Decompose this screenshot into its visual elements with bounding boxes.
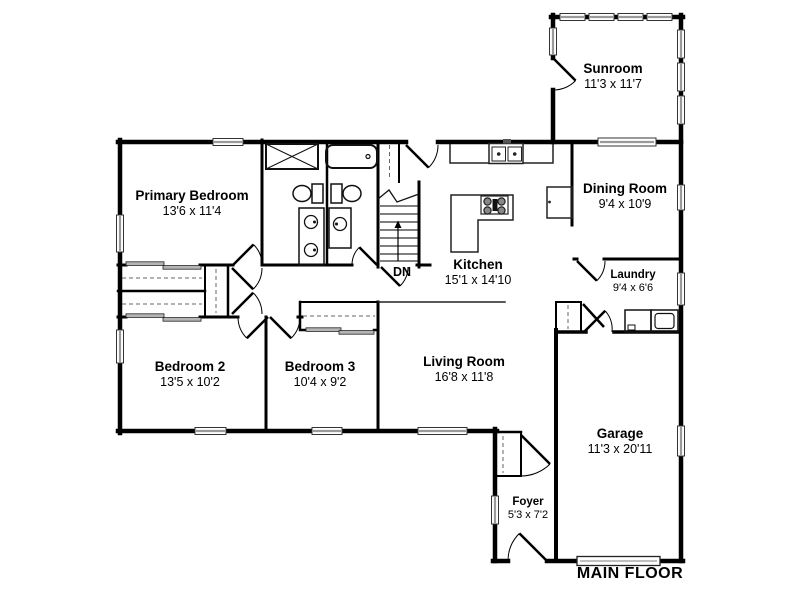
- window-sunroom-top-2: [589, 14, 614, 21]
- bathroom-door: [352, 247, 377, 265]
- room-name: Kitchen: [445, 257, 512, 273]
- room-name: Primary Bedroom: [135, 188, 248, 204]
- refrigerator: [547, 187, 572, 218]
- room-label-kitchen: Kitchen 15'1 x 14'10: [445, 257, 512, 287]
- window-sunroom-left: [550, 28, 557, 55]
- room-label-primary-bedroom: Primary Bedroom 13'6 x 11'4: [135, 188, 248, 218]
- window-sunroom-right-1: [678, 30, 685, 58]
- window-laundry-right: [678, 273, 685, 305]
- vanity-primary: [299, 208, 324, 265]
- exterior-walls: [118, 15, 683, 561]
- primary-closet-sliders: [126, 262, 201, 269]
- windows: [117, 14, 685, 566]
- room-name: Garage: [588, 426, 653, 442]
- room-name: Living Room: [423, 354, 505, 370]
- stairs-down-label: DN: [393, 265, 411, 279]
- room-dims: 13'5 x 10'2: [155, 375, 226, 389]
- vanity-hall-bath: [329, 208, 351, 248]
- stairs: [378, 190, 419, 261]
- bathtub-fixture: [326, 145, 377, 168]
- room-name: Laundry: [610, 269, 655, 282]
- laundry-fixtures: [625, 310, 678, 332]
- room-name: Bedroom 3: [285, 359, 356, 375]
- sliding-closet-doors: [126, 262, 374, 334]
- room-label-living-room: Living Room 16'8 x 11'8: [423, 354, 505, 384]
- wall-foyer-closet-side: [495, 432, 521, 476]
- window-garage-right: [678, 426, 685, 456]
- bedroom2-closet-sliders: [126, 314, 201, 321]
- window-primary-left: [117, 215, 124, 252]
- laundry-door: [577, 261, 605, 281]
- room-label-bedroom-2: Bedroom 2 13'5 x 10'2: [155, 359, 226, 389]
- toilet-fixture-right: [331, 184, 361, 203]
- room-name: Dining Room: [583, 181, 667, 197]
- plan-title: MAIN FLOOR: [577, 565, 683, 583]
- front-door: [508, 533, 547, 561]
- dryer: [651, 310, 678, 332]
- room-dims: 9'4 x 10'9: [583, 197, 667, 211]
- foyer-closet-door: [521, 435, 550, 476]
- window-sunroom-right-3: [678, 96, 685, 124]
- sunroom-door: [553, 58, 576, 90]
- linen-closet-door-top: [232, 268, 262, 289]
- window-sunroom-right-2: [678, 63, 685, 91]
- window-bedroom3-bottom: [312, 428, 342, 435]
- window-sunroom-top-3: [618, 14, 643, 21]
- toilet-fixture-left: [293, 184, 323, 203]
- window-sunroom-dining: [598, 138, 656, 146]
- window-sunroom-top-4: [647, 14, 672, 21]
- back-door: [406, 145, 438, 168]
- room-dims: 15'1 x 14'10: [445, 273, 512, 287]
- window-bedroom2-bottom: [195, 428, 226, 435]
- primary-bedroom-door: [233, 245, 262, 266]
- room-label-sunroom: Sunroom 11'3 x 11'7: [583, 61, 642, 91]
- stairs-break-line: [378, 190, 419, 202]
- stairs-treads: [380, 206, 418, 261]
- room-label-bedroom-3: Bedroom 3 10'4 x 9'2: [285, 359, 356, 389]
- shower-fixture: [266, 144, 318, 169]
- washer: [625, 310, 651, 332]
- room-dims: 11'3 x 20'11: [588, 442, 653, 456]
- room-dims: 13'6 x 11'4: [135, 204, 248, 218]
- bedroom3-door: [270, 317, 300, 338]
- cooktop-fixture: [481, 196, 508, 214]
- window-primary-top: [213, 139, 243, 146]
- window-living-bottom: [418, 428, 467, 435]
- kitchen-fixtures: [450, 139, 572, 252]
- linen-closet-door-bottom: [232, 293, 262, 314]
- room-name: Sunroom: [583, 61, 642, 77]
- room-dims: 5'3 x 7'2: [508, 509, 548, 522]
- room-label-dining-room: Dining Room 9'4 x 10'9: [583, 181, 667, 211]
- room-dims: 10'4 x 9'2: [285, 375, 356, 389]
- room-dims: 9'4 x 6'6: [610, 282, 655, 295]
- window-sunroom-top-1: [560, 14, 585, 21]
- room-label-laundry: Laundry 9'4 x 6'6: [610, 269, 655, 295]
- window-dining-right: [678, 185, 685, 210]
- room-name: Bedroom 2: [155, 359, 226, 375]
- room-label-garage: Garage 11'3 x 20'11: [588, 426, 653, 456]
- window-foyer-left: [492, 496, 499, 524]
- room-dims: 11'3 x 11'7: [583, 77, 642, 91]
- floor-plan: Primary Bedroom 13'6 x 11'4 Sunroom 11'3…: [0, 0, 800, 600]
- floor-plan-drawing: [0, 0, 800, 600]
- room-name: Foyer: [508, 496, 548, 509]
- window-bedroom2-left: [117, 330, 124, 363]
- bedroom2-door: [238, 317, 268, 338]
- room-label-foyer: Foyer 5'3 x 7'2: [508, 496, 548, 522]
- bedroom3-closet-sliders: [306, 328, 374, 334]
- room-dims: 16'8 x 11'8: [423, 370, 505, 384]
